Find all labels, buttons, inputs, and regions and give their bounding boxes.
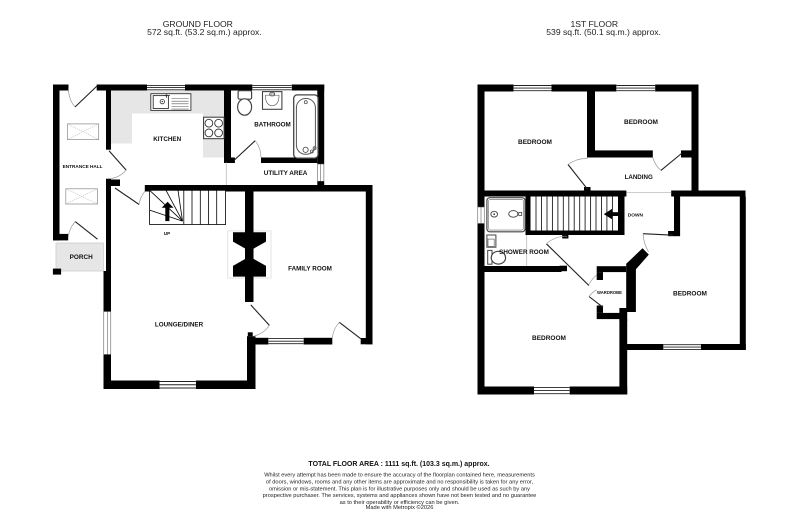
svg-text:Made with Metropix ©2026: Made with Metropix ©2026: [366, 504, 434, 511]
svg-text:BEDROOM: BEDROOM: [518, 139, 552, 146]
svg-text:WARDROBE: WARDROBE: [597, 290, 622, 295]
svg-text:LOUNGE/DINER: LOUNGE/DINER: [155, 322, 204, 329]
svg-text:SHOWER ROOM: SHOWER ROOM: [499, 249, 549, 256]
svg-text:PORCH: PORCH: [70, 254, 93, 261]
svg-text:572 sq.ft. (53.2 sq.m.) approx: 572 sq.ft. (53.2 sq.m.) approx.: [147, 27, 262, 37]
svg-text:BEDROOM: BEDROOM: [624, 119, 658, 126]
svg-text:UP: UP: [164, 231, 170, 236]
svg-text:UTILITY AREA: UTILITY AREA: [264, 170, 308, 177]
svg-text:FAMILY ROOM: FAMILY ROOM: [288, 265, 332, 272]
svg-text:BEDROOM: BEDROOM: [673, 290, 707, 297]
svg-text:prospective purchaser. The ser: prospective purchaser. The services, sys…: [263, 493, 537, 499]
svg-text:of doors, windows, rooms and a: of doors, windows, rooms and any other i…: [266, 480, 534, 486]
svg-text:BATHROOM: BATHROOM: [254, 122, 291, 129]
svg-text:omission or mis-statement. Thi: omission or mis-statement. This plan is …: [269, 486, 530, 492]
svg-text:539 sq.ft. (50.1 sq.m.) approx: 539 sq.ft. (50.1 sq.m.) approx.: [546, 27, 661, 37]
svg-text:BEDROOM: BEDROOM: [532, 335, 566, 342]
svg-text:TOTAL FLOOR AREA : 1111 sq.ft.: TOTAL FLOOR AREA : 1111 sq.ft. (103.3 sq…: [308, 461, 489, 468]
svg-text:LANDING: LANDING: [625, 174, 653, 181]
svg-text:Whilst every attempt has been: Whilst every attempt has been made to en…: [264, 472, 535, 478]
svg-text:DOWN: DOWN: [628, 212, 644, 218]
svg-text:KITCHEN: KITCHEN: [153, 136, 181, 143]
svg-text:ENTRANCE HALL: ENTRANCE HALL: [63, 164, 103, 169]
